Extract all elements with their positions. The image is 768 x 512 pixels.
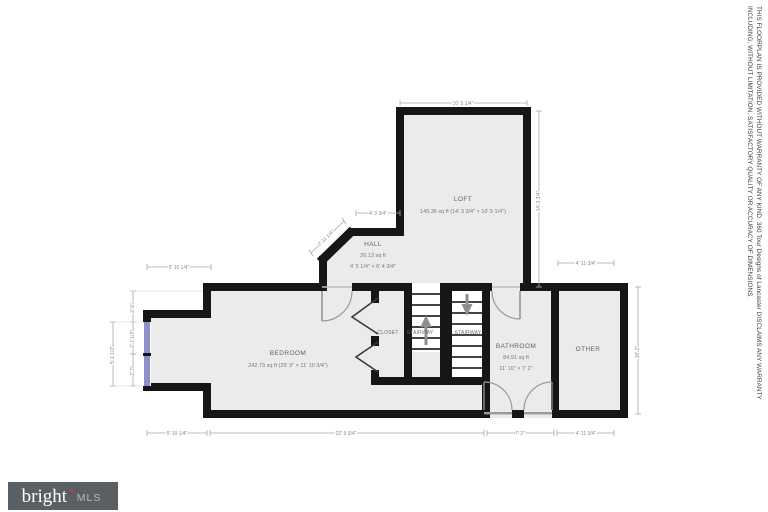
- hall-dims: 4' 5 1/4" × 6' 4 3/4": [350, 264, 396, 270]
- disclaimer-line-1: THIS FLOORPLAN IS PROVIDED WITHOUT WARRA…: [754, 6, 763, 476]
- dim-left-seg2: 2' 7 1/2": [130, 330, 136, 348]
- hall-area: 26.13 sq ft: [360, 253, 386, 259]
- window: [143, 322, 151, 386]
- dim-bottom-2: 22' 9 3/4": [336, 431, 357, 437]
- dim-bottom-1: 5' 10 1/4": [167, 431, 188, 437]
- stairway-down-label: STAIRWAY: [455, 330, 482, 336]
- loft-area: 149.36 sq ft (14' 3 3/4" × 10' 5 1/4"): [420, 209, 506, 215]
- disclaimer-text: THIS FLOORPLAN IS PROVIDED WITHOUT WARRA…: [745, 6, 762, 476]
- window-mullion: [143, 353, 151, 356]
- floorplan-drawing: 10' 5 1/4" 4' 3 3/4" 2' 11 1/4" 5' 10 1/…: [0, 0, 768, 512]
- closet-label: CLOSET: [377, 330, 398, 336]
- dim-left-overall: 5' 1 1/2": [110, 346, 116, 364]
- brightmls-star-icon: ✶: [68, 486, 75, 495]
- bathroom-label: BATHROOM: [496, 343, 536, 350]
- disclaimer-line-2: INCLUDING, WITHOUT LIMITATION, SATISFACT…: [745, 6, 754, 476]
- dim-loft-top: 10' 5 1/4": [453, 101, 474, 107]
- dim-other-top: 4' 11 3/4": [576, 261, 597, 267]
- hall-label: HALL: [364, 241, 382, 248]
- bathroom-dims: 11' 10" × 7' 2": [499, 366, 532, 372]
- dim-bump-top: 5' 10 1/4": [169, 265, 190, 271]
- dim-bottom-4: 4' 11 3/4": [576, 431, 597, 437]
- dim-loft-right: 14' 3 3/4": [536, 190, 542, 211]
- other-label: OTHER: [576, 346, 601, 353]
- floorplan-page: 10' 5 1/4" 4' 3 3/4" 2' 11 1/4" 5' 10 1/…: [0, 0, 768, 512]
- room-bedroom-bump: [143, 310, 211, 391]
- brightmls-logo: bright✶MLS: [8, 482, 118, 510]
- brightmls-wordmark: bright: [22, 487, 67, 506]
- room-hall: [319, 232, 404, 291]
- dim-left-seg1: 2' 6": [130, 303, 136, 313]
- loft-label: LOFT: [454, 196, 472, 203]
- dim-left-seg3: 2' 7": [130, 366, 136, 376]
- stairway-up-label: STAIRWAY: [407, 330, 434, 336]
- dim-hall-top: 4' 3 3/4": [369, 211, 387, 217]
- dim-bottom-3: 7' 2": [515, 431, 525, 437]
- brightmls-mls-text: MLS: [77, 492, 102, 504]
- dim-right-side: 10' 2": [635, 346, 641, 359]
- bathroom-area: 84.91 sq ft: [503, 355, 529, 361]
- bedroom-label: BEDROOM: [270, 350, 306, 357]
- bedroom-area: 242.73 sq ft (29' 9" × 11' 10 3/4"): [248, 363, 328, 369]
